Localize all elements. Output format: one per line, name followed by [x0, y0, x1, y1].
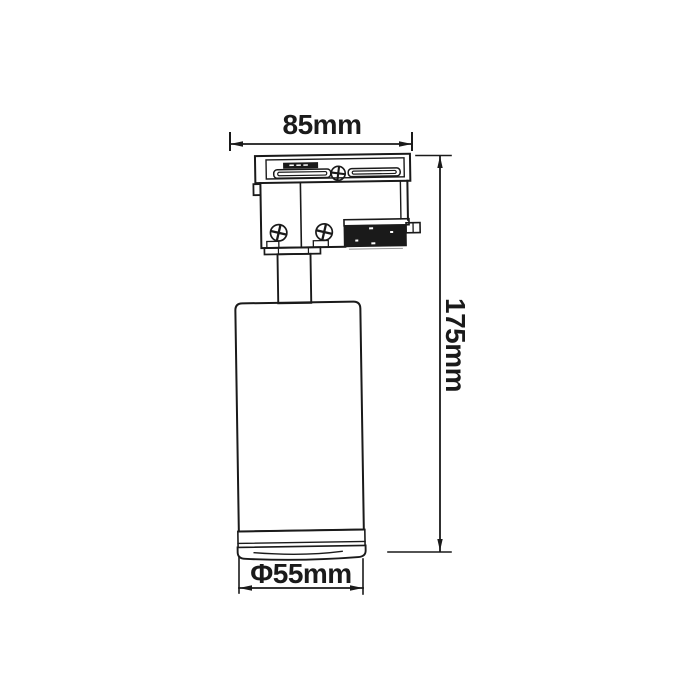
drawing-canvas: 85mm 175mm Φ55mm [0, 0, 700, 700]
diameter-arrow-right [350, 585, 363, 591]
phillips-screw-icon-left [269, 224, 287, 242]
fixture-drawing [231, 154, 425, 561]
height-arrow-bottom [437, 539, 442, 551]
lamp-cylinder [234, 301, 366, 560]
knob-shadow-line [349, 248, 402, 249]
width-arrow-left [230, 141, 243, 147]
phillips-screw-icon-top [331, 166, 346, 181]
height-arrow-top [437, 156, 442, 168]
height-dimension-label: 175mm [440, 298, 471, 392]
contact-slot-left-inner [278, 172, 327, 176]
adjustment-knob [344, 219, 420, 250]
track-light-dimension-drawing: 85mm 175mm Φ55mm [0, 0, 700, 700]
contact-slot-right-inner [352, 170, 396, 174]
lens-edge-curve [254, 551, 342, 555]
diameter-dimension: Φ55mm [239, 557, 363, 594]
width-arrow-right [399, 141, 412, 147]
width-dimension-label: 85mm [283, 109, 362, 140]
ink-layer: 85mm 175mm Φ55mm [230, 109, 471, 594]
stem [277, 254, 311, 304]
diameter-dimension-label: Φ55mm [250, 558, 351, 589]
bezel-ring-line [238, 541, 365, 543]
track-adapter [253, 154, 420, 251]
contact-slot-right [348, 168, 400, 177]
adapter-body-inner-edge [400, 181, 401, 219]
phillips-screw-icon-right [315, 223, 333, 241]
adapter-side-clip [253, 184, 259, 195]
cylinder-body [235, 302, 364, 532]
adapter-body-divider [300, 182, 301, 247]
contact-slot-left [274, 169, 331, 178]
width-dimension: 85mm [230, 109, 412, 150]
bezel-ring-band [238, 529, 365, 547]
